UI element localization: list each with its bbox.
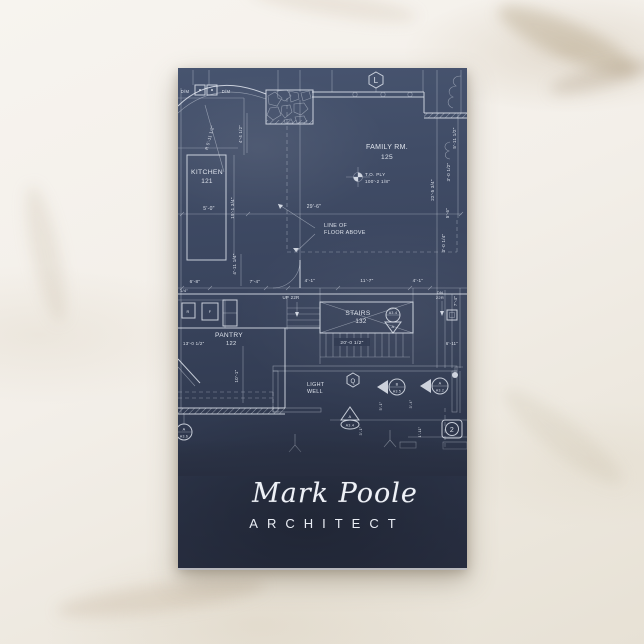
datum-label: T.O. PLY bbox=[365, 172, 385, 177]
note-floor-above: FLOOR ABOVE bbox=[324, 230, 366, 236]
dm-left-label: D/M bbox=[181, 89, 190, 94]
marker-a36: A3.6 bbox=[180, 435, 188, 439]
dim-20-0: 20'-0 1/2" bbox=[340, 340, 363, 346]
lightwell-label-1: LIGHT bbox=[307, 382, 325, 388]
marble-vein bbox=[493, 377, 632, 496]
marble-vein bbox=[247, 0, 419, 29]
up-label: UP 22R bbox=[282, 295, 299, 300]
dim-22-5: 22'-5 3/4" bbox=[430, 179, 435, 201]
dim-13-0: 13'-0 1/2" bbox=[183, 341, 205, 346]
right-edge-dims: 5'-11 1/2" 3'-0 1/2" 22'-5 3/4" 5'-6" 3'… bbox=[430, 127, 457, 252]
pantry-label: PANTRY bbox=[215, 332, 243, 339]
marker-a34-lower: A A3.4 bbox=[341, 407, 359, 429]
dim-5-1: 5'-1" bbox=[379, 401, 383, 410]
stone-fireplace bbox=[266, 90, 313, 124]
dn-risers: 22R bbox=[436, 295, 444, 300]
door-swing bbox=[273, 260, 300, 288]
dim-7-4a: 7'-4" bbox=[250, 279, 261, 284]
datum-elevation: 100'-2 1/8" bbox=[365, 179, 390, 184]
section-markers: B A3.5 A A3.2 3'-4" 5'-1" bbox=[377, 367, 463, 410]
marker-a34-stairs-letter: A bbox=[392, 324, 395, 329]
light-well: LIGHT WELL Q bbox=[273, 366, 460, 413]
dim-11-7: 11'-7" bbox=[360, 278, 373, 283]
dm-right-label: D/M bbox=[222, 89, 231, 94]
marker-a32: A3.2 bbox=[436, 389, 444, 393]
dim-19-1: 19'-1 3/4" bbox=[230, 197, 235, 219]
identity-block: Mark Poole ARCHITECT bbox=[178, 478, 467, 531]
freezer-label: F bbox=[209, 310, 212, 314]
bottom-left-walls: A A3.6 bbox=[178, 359, 285, 440]
kitchen-number: 121 bbox=[201, 178, 213, 185]
stairs: UP 22R STAIRS 132 A3.4 A 20'-0 1/2" bbox=[282, 288, 413, 364]
family-number: 125 bbox=[381, 154, 393, 161]
dim-4-1b: 4'-1" bbox=[413, 278, 424, 283]
family-room: FAMILY RM. 125 T.O. PLY 100'-2 1/8" bbox=[300, 100, 408, 288]
kitchen-label: KITCHEN bbox=[191, 169, 223, 176]
marker-a35-letter: B bbox=[396, 383, 399, 387]
dim-29-6: 29'-6" bbox=[307, 204, 322, 210]
stairs-number: 132 bbox=[355, 318, 366, 325]
dim-4-11: 4'-11 1/4" bbox=[232, 253, 237, 274]
dim-3-4: 3'-4" bbox=[409, 399, 413, 408]
lightwell-label-2: WELL bbox=[307, 389, 323, 395]
dim-6-8: 6'-8" bbox=[190, 279, 201, 284]
business-card: D/M D/M R 5'-11 1/2" 4'-4 1/2" KITCHEN 1… bbox=[178, 68, 467, 568]
dim-7-4b: 7'-4" bbox=[453, 296, 458, 306]
dim-3-0a: 3'-0 1/2" bbox=[446, 162, 451, 181]
dim-10-1: 10'-1" bbox=[234, 369, 239, 382]
fridge-label: R bbox=[186, 310, 189, 314]
family-label: FAMILY RM. bbox=[366, 144, 408, 151]
cardholder-name: Mark Poole bbox=[178, 478, 467, 510]
marble-vein bbox=[55, 571, 267, 624]
detail-2-label: 2 bbox=[450, 427, 454, 434]
pantry-number: 122 bbox=[226, 341, 237, 347]
marker-a36-letter: A bbox=[183, 428, 186, 432]
dim-5-11: 5'-11 1/2" bbox=[452, 127, 457, 148]
hex-q-label: Q bbox=[351, 379, 356, 385]
hex-l-marker: L bbox=[369, 72, 383, 88]
note-line-of: LINE OF bbox=[324, 223, 347, 229]
blueprint-fade bbox=[178, 440, 467, 476]
dim-4-1a: 4'-1" bbox=[305, 278, 316, 283]
dim-6-11: 6'-11" bbox=[446, 341, 458, 346]
dim-3-0b: 3'-0 1/4" bbox=[441, 233, 446, 252]
cardholder-title: ARCHITECT bbox=[187, 516, 467, 531]
dim-1-4: 1/4" bbox=[180, 288, 188, 293]
marker-a34-stairs: A3.4 bbox=[389, 311, 398, 315]
radius-dim: R 5'-11 1/2" bbox=[204, 125, 215, 151]
marble-vein bbox=[18, 183, 74, 326]
marble-background: D/M D/M R 5'-11 1/2" 4'-4 1/2" KITCHEN 1… bbox=[0, 0, 644, 644]
dim-4-4: 4'-4 1/2" bbox=[238, 125, 243, 143]
hex-l-label: L bbox=[374, 76, 379, 85]
dim-5-6: 5'-6" bbox=[445, 208, 450, 218]
dim-3-1: 3'-1" bbox=[359, 426, 363, 435]
stairs-label: STAIRS bbox=[345, 310, 370, 317]
dim-1-11: 1'-11" bbox=[418, 426, 422, 437]
top-walls bbox=[193, 70, 467, 159]
dim-line-mid: 6'-8" 7'-4" 4'-1" 11'-7" 4'-1" 1/4" 4'-1… bbox=[178, 253, 467, 294]
marker-a34-lower-sheet: A3.4 bbox=[346, 424, 354, 428]
dim-line-upper: 5'-0" 29'-6" bbox=[178, 204, 463, 216]
marker-a32-letter: A bbox=[439, 382, 442, 386]
marker-a34-lower-letter: A bbox=[349, 414, 352, 419]
dim-5-0: 5'-0" bbox=[203, 206, 214, 212]
marker-a35: A3.5 bbox=[393, 390, 401, 394]
